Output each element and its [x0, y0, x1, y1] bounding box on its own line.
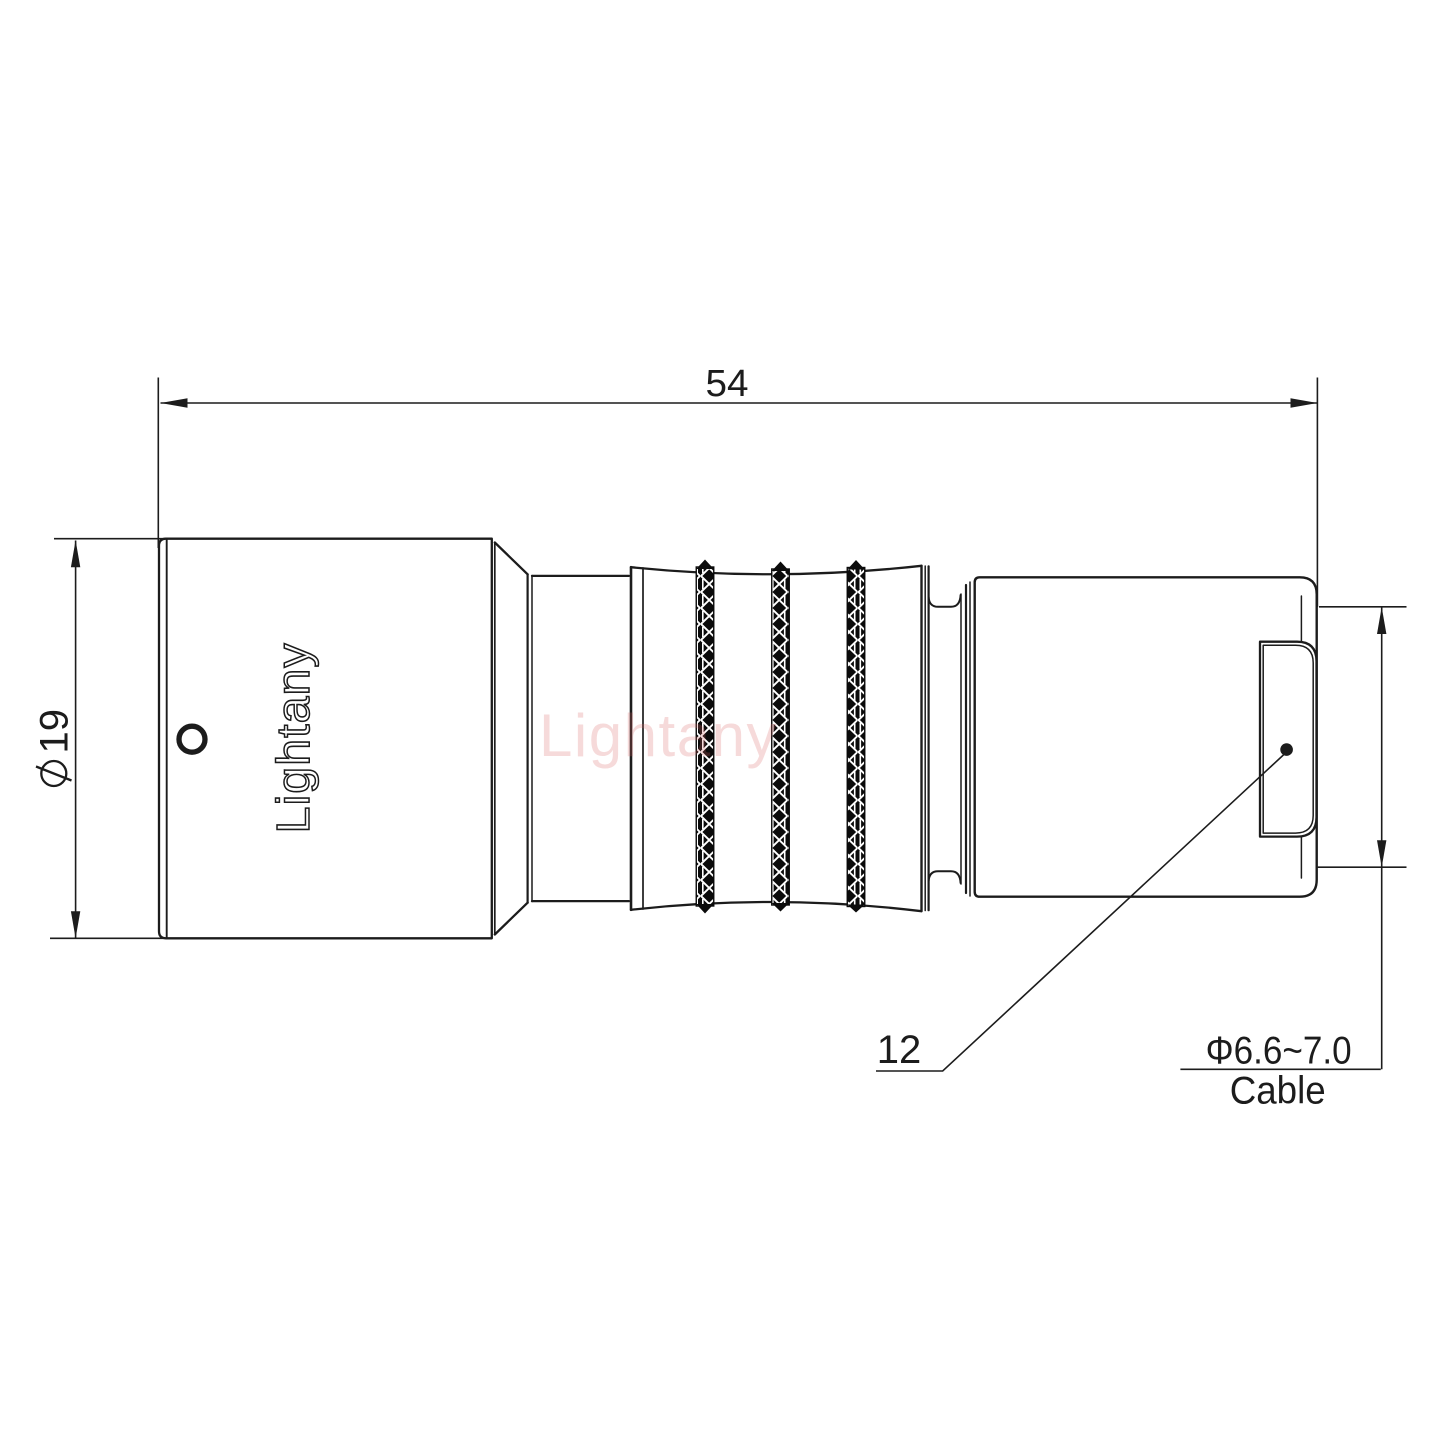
svg-text:54: 54: [706, 363, 749, 405]
svg-text:Lightany: Lightany: [539, 702, 778, 769]
svg-text:Φ6.6~7.0: Φ6.6~7.0: [1206, 1030, 1352, 1073]
svg-text:Cable: Cable: [1230, 1070, 1326, 1113]
svg-text:Lightany: Lightany: [267, 642, 319, 833]
svg-text:19: 19: [33, 709, 77, 754]
svg-text:12: 12: [877, 1028, 922, 1072]
